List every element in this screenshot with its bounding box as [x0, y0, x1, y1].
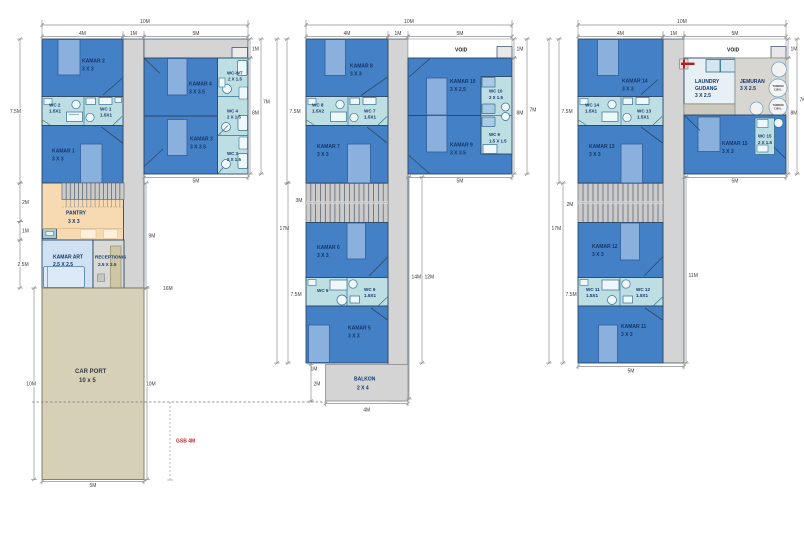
svg-text:PANTRY: PANTRY	[66, 211, 87, 217]
svg-text:WC 15: WC 15	[758, 134, 772, 139]
svg-text:2M: 2M	[22, 200, 29, 206]
svg-text:KAMAR 1: KAMAR 1	[52, 149, 75, 155]
svg-text:10M: 10M	[26, 382, 36, 388]
svg-text:3 X 2.5: 3 X 2.5	[450, 87, 466, 93]
svg-text:17M: 17M	[552, 226, 562, 232]
svg-text:WC 5: WC 5	[317, 288, 329, 293]
svg-text:LAUNDRY: LAUNDRY	[695, 79, 720, 85]
svg-text:CAR PORT: CAR PORT	[75, 369, 107, 375]
svg-text:3 X 3: 3 X 3	[68, 219, 80, 225]
svg-text:KAMAR 10: KAMAR 10	[450, 79, 476, 85]
svg-text:3 X 3: 3 X 3	[82, 67, 94, 73]
svg-text:KAMAR 3: KAMAR 3	[190, 137, 213, 143]
svg-text:KAMAR 2: KAMAR 2	[82, 59, 105, 65]
svg-text:7M: 7M	[530, 108, 537, 114]
svg-text:GUDANG: GUDANG	[695, 86, 717, 92]
svg-text:1.5X1: 1.5X1	[100, 113, 112, 118]
svg-text:WC 9: WC 9	[489, 132, 501, 137]
svg-text:KAMAR 4: KAMAR 4	[189, 82, 212, 88]
svg-text:8M: 8M	[252, 111, 259, 117]
svg-text:3 X 3.5: 3 X 3.5	[189, 90, 205, 96]
svg-text:KAMAR 5: KAMAR 5	[348, 326, 371, 332]
svg-text:12M: 12M	[425, 275, 435, 281]
svg-text:3 X 2.5: 3 X 2.5	[695, 93, 711, 99]
svg-text:WC 11: WC 11	[586, 287, 600, 292]
svg-text:3 X 3: 3 X 3	[317, 152, 329, 158]
svg-text:11M: 11M	[689, 273, 698, 279]
svg-text:7.5M: 7.5M	[291, 292, 302, 298]
svg-text:2.5 X 2.5: 2.5 X 2.5	[53, 262, 73, 268]
svg-text:10 x 5: 10 x 5	[79, 378, 96, 384]
svg-text:5M: 5M	[457, 31, 464, 37]
svg-text:3M: 3M	[296, 198, 303, 204]
svg-text:14M: 14M	[412, 275, 422, 281]
svg-text:10M: 10M	[140, 19, 150, 25]
svg-text:1.5X1: 1.5X1	[586, 293, 598, 298]
svg-text:WC-WT: WC-WT	[227, 71, 243, 76]
svg-text:10M: 10M	[146, 382, 156, 388]
svg-text:7.5M: 7.5M	[290, 109, 301, 115]
svg-text:2.5 X 2.5: 2.5 X 2.5	[98, 262, 117, 267]
svg-text:WC 1: WC 1	[100, 107, 112, 112]
svg-text:WC 4: WC 4	[227, 109, 239, 114]
svg-text:5M: 5M	[732, 31, 739, 37]
svg-text:KAMAR 8: KAMAR 8	[350, 64, 373, 70]
svg-text:KAMAR 7: KAMAR 7	[317, 144, 340, 150]
svg-text:KAMAR ART: KAMAR ART	[53, 255, 83, 261]
svg-text:2 X 1.5: 2 X 1.5	[489, 95, 503, 100]
svg-text:3 X 3: 3 X 3	[621, 332, 633, 338]
svg-text:TANDON: TANDON	[773, 84, 784, 88]
svg-text:3 X 3: 3 X 3	[350, 72, 362, 78]
svg-text:2M: 2M	[567, 202, 574, 208]
svg-text:JEMURAN: JEMURAN	[740, 79, 765, 85]
svg-text:7M: 7M	[263, 100, 270, 106]
svg-text:1M: 1M	[311, 367, 318, 373]
svg-text:3 X 3: 3 X 3	[592, 252, 604, 258]
svg-text:5M: 5M	[628, 369, 635, 375]
svg-text:3 X 3.5: 3 X 3.5	[190, 145, 206, 151]
svg-text:KAMAR 12: KAMAR 12	[592, 244, 618, 250]
svg-text:1M: 1M	[791, 46, 798, 52]
svg-text:WC 6: WC 6	[364, 287, 376, 292]
svg-text:5M: 5M	[90, 483, 97, 489]
svg-text:3 X 2.5: 3 X 2.5	[740, 86, 756, 92]
svg-text:2 X 1.5: 2 X 1.5	[227, 157, 241, 162]
svg-text:16M: 16M	[163, 286, 173, 292]
svg-text:RECEPTIONIS: RECEPTIONIS	[95, 255, 126, 260]
svg-text:1.5X1: 1.5X1	[585, 109, 597, 114]
svg-text:WC 7: WC 7	[364, 109, 376, 114]
svg-text:3 X 3: 3 X 3	[722, 149, 734, 155]
svg-text:4M: 4M	[79, 31, 86, 37]
svg-text:1.5X1: 1.5X1	[364, 293, 376, 298]
svg-text:3 X 3: 3 X 3	[622, 87, 634, 93]
svg-text:10M: 10M	[404, 19, 414, 25]
svg-text:KAMAR 13: KAMAR 13	[589, 144, 615, 150]
svg-text:WC 12: WC 12	[636, 287, 650, 292]
svg-text:7.5M: 7.5M	[562, 109, 573, 115]
svg-text:GSB 4M: GSB 4M	[176, 439, 195, 445]
svg-text:5M: 5M	[193, 31, 200, 37]
svg-text:1.5X1: 1.5X1	[49, 109, 61, 114]
svg-text:4M: 4M	[344, 31, 351, 37]
svg-text:9M: 9M	[149, 233, 156, 239]
svg-text:1.5X2: 1.5X2	[312, 109, 324, 114]
svg-text:VOID: VOID	[727, 48, 740, 54]
svg-text:2M: 2M	[314, 382, 321, 388]
svg-text:5M: 5M	[457, 179, 464, 185]
svg-text:5M: 5M	[193, 179, 200, 185]
svg-text:3 X 3.5: 3 X 3.5	[450, 151, 466, 157]
svg-text:1.5X1: 1.5X1	[364, 115, 376, 120]
svg-text:1M: 1M	[130, 31, 137, 37]
svg-text:KAMAR 6: KAMAR 6	[317, 245, 340, 251]
svg-text:1M: 1M	[395, 31, 402, 37]
svg-text:WC 8: WC 8	[312, 103, 324, 108]
svg-text:4M: 4M	[363, 408, 370, 414]
svg-text:KAMAR 9: KAMAR 9	[450, 143, 473, 149]
svg-text:KAMAR 11: KAMAR 11	[621, 324, 647, 330]
svg-text:WC 10: WC 10	[489, 89, 503, 94]
svg-text:2 X 1.5: 2 X 1.5	[227, 115, 241, 120]
svg-text:VOID: VOID	[455, 48, 468, 54]
svg-text:8M: 8M	[791, 111, 798, 117]
svg-text:7M: 7M	[800, 98, 804, 104]
svg-text:1M: 1M	[22, 229, 29, 235]
svg-text:10M: 10M	[677, 19, 687, 25]
svg-text:1.5X1: 1.5X1	[636, 293, 648, 298]
svg-text:7.5M: 7.5M	[10, 109, 21, 115]
svg-text:2 X 1.5: 2 X 1.5	[758, 140, 772, 145]
svg-text:WC 13: WC 13	[637, 109, 651, 114]
svg-text:8M: 8M	[517, 111, 524, 117]
svg-text:KAMAR 15: KAMAR 15	[722, 141, 748, 147]
svg-text:2.5M: 2.5M	[18, 262, 29, 268]
svg-text:1M: 1M	[252, 46, 259, 52]
svg-text:7.5M: 7.5M	[566, 292, 577, 298]
svg-text:WC 2: WC 2	[49, 103, 61, 108]
svg-text:1100 L: 1100 L	[774, 107, 782, 111]
svg-text:2 X 1.5: 2 X 1.5	[228, 77, 242, 82]
svg-text:WC 3: WC 3	[227, 151, 239, 156]
svg-text:5M: 5M	[732, 179, 739, 185]
svg-text:1M: 1M	[670, 31, 677, 37]
svg-text:2 X 4: 2 X 4	[357, 386, 369, 392]
svg-text:WC 14: WC 14	[585, 103, 599, 108]
svg-text:BALKON: BALKON	[354, 377, 376, 383]
svg-text:3 X 3: 3 X 3	[589, 152, 601, 158]
svg-text:3 X 3: 3 X 3	[348, 334, 360, 340]
svg-text:1.5 X 1.5: 1.5 X 1.5	[489, 139, 507, 144]
svg-text:4M: 4M	[617, 31, 624, 37]
svg-text:1100 L: 1100 L	[774, 88, 782, 92]
svg-text:1M: 1M	[517, 46, 524, 52]
svg-text:1.5X1: 1.5X1	[637, 115, 649, 120]
svg-text:KAMAR 14: KAMAR 14	[622, 79, 648, 85]
svg-text:3 X 3: 3 X 3	[317, 253, 329, 259]
svg-text:3 X 3: 3 X 3	[52, 157, 64, 163]
svg-text:TANDON: TANDON	[773, 103, 784, 107]
